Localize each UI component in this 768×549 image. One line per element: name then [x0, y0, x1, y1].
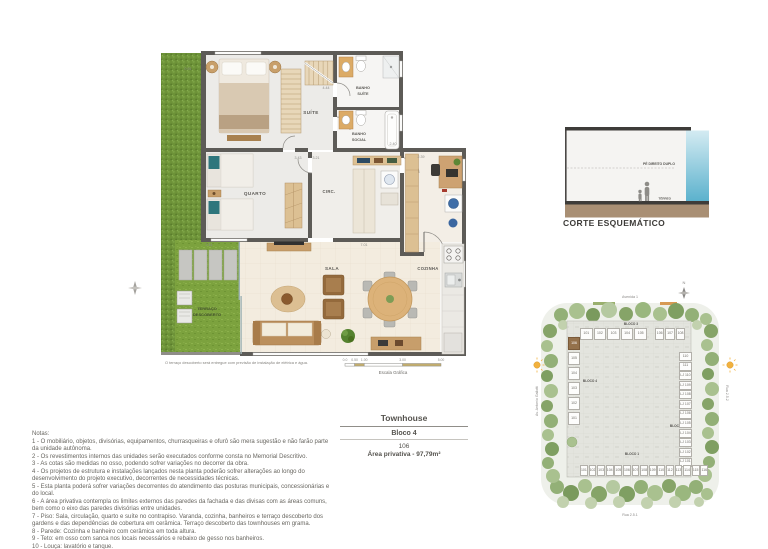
site-unit-cell: 105 — [614, 465, 622, 476]
terrace-low-wall — [161, 352, 240, 355]
site-unit-cell: 102 — [594, 328, 607, 340]
scale-tick-2: 1.00 — [361, 358, 368, 362]
site-unit-cell: LJ 108 — [679, 390, 692, 399]
section-label-terreo: TÉRREO — [658, 196, 671, 201]
site-unit-cell: 106 — [623, 465, 631, 476]
site-unit-cell: LJ 105 — [679, 419, 692, 428]
site-unit-cell: 112 — [666, 465, 674, 476]
site-unit-cell: 105 — [634, 328, 647, 340]
site-unit-cell: 108 — [676, 328, 685, 340]
courtyard-green — [567, 437, 577, 447]
unit-type: Townhouse — [340, 413, 468, 427]
sun-icon-right — [723, 358, 738, 373]
street-left: Av. Antonio Gallotti — [535, 386, 539, 416]
site-unit-cell: 104 — [568, 367, 580, 380]
section-interior — [566, 130, 686, 203]
dining-set — [363, 272, 421, 350]
unit-info-table: Townhouse Bloco 4 106 Área privativa - 9… — [340, 413, 468, 458]
section-label-pe-direito: PÉ DIREITO DUPLO — [643, 161, 675, 166]
scale-tick-4: 5.00 — [438, 358, 445, 362]
label-bloco-4: BLOCO 4 — [583, 379, 597, 383]
site-unit-cell: 113 — [675, 465, 683, 476]
label-bloco-1: BLOCO 1 — [625, 452, 639, 456]
site-unit-cell: 103 — [568, 382, 580, 395]
label-suite: SUÍTE — [303, 108, 319, 115]
section-sky — [686, 131, 709, 204]
site-unit-cell: 101 — [568, 412, 580, 425]
street-right: Rua 2.5.2 — [725, 385, 729, 401]
compass-n-label: N — [683, 280, 686, 285]
kitchen — [442, 244, 464, 354]
tv-console — [267, 242, 311, 252]
hedge-lower — [161, 240, 175, 354]
site-unit-cell: 107 — [632, 465, 640, 476]
unit-area: Área privativa - 97,79m² — [340, 451, 468, 458]
street-top: Avenida 1 — [622, 295, 638, 299]
section-ground — [565, 205, 709, 218]
site-unit-cell: 108 — [640, 465, 648, 476]
site-unit-cell: 103 — [607, 328, 620, 340]
dim-1: 4.44 — [323, 86, 330, 90]
site-unit-cell: LJ 104 — [679, 429, 692, 438]
notes-title: Notas: — [32, 431, 334, 439]
scale-tick-3: 3.00 — [399, 358, 406, 362]
floor-plan: TERRAÇO DESCOBERTO — [95, 23, 475, 395]
scale-title: Escala Gráfica — [379, 370, 408, 375]
site-unit-cell: 109 — [649, 465, 657, 476]
site-unit-cell: 102 — [589, 465, 597, 476]
site-unit-cell: 114 — [683, 465, 691, 476]
site-unit-cell: 101 — [580, 328, 593, 340]
label-banho-suite-2: SUÍTE — [357, 91, 369, 96]
label-quarto: QUARTO — [244, 191, 266, 196]
scale-tick-1: 0.50 — [351, 358, 358, 362]
dim-6: 7.01 — [361, 243, 368, 247]
site-unit-cell: 110 — [657, 465, 665, 476]
dim-8: 0.91 — [185, 67, 192, 71]
terrace-label-line2: DESCOBERTO — [193, 312, 221, 317]
dim-7: 2.41 — [206, 243, 213, 247]
site-unit-cell: LJ 107 — [679, 400, 692, 409]
unit-number: 106 — [340, 443, 468, 450]
notes-block: Notas: 1 - O mobiliário, objetos, divisó… — [32, 431, 334, 549]
site-unit-cell: LJ 109 — [679, 381, 692, 390]
section-diagram: PÉ DIREITO DUPLO TÉRREO — [558, 120, 718, 220]
plan-north-marker — [128, 281, 142, 295]
terrace-label-line1: TERRAÇO — [197, 306, 217, 311]
dim-2: 3.43 — [295, 156, 302, 160]
site-unit-cell: 103 — [597, 465, 605, 476]
page: TERRAÇO DESCOBERTO — [0, 0, 768, 549]
label-cozinha: COZINHA — [417, 266, 438, 271]
label-banho-social-1: BANHO — [352, 132, 366, 136]
site-unit-cell: LJ 106 — [679, 410, 692, 419]
site-unit-cell: 104 — [621, 328, 634, 340]
dim-5: 2.39 — [418, 155, 425, 159]
site-unit-cell: LJ 103 — [679, 438, 692, 447]
site-unit-cell: 116 — [700, 465, 708, 476]
street-bottom: Rua 2.5.1 — [622, 513, 638, 517]
unit-block: Bloco 4 — [340, 427, 468, 440]
compass-rose: N — [678, 280, 690, 299]
site-unit-cell: 115 — [692, 465, 700, 476]
plan-footnote: O terraço descoberto será entregue com p… — [165, 360, 308, 365]
site-unit-cell: 111 — [679, 362, 692, 371]
site-plan: BLOCO 3 BLOCO 4 BLOCO 2 BLOCO 1 N Avenid… — [533, 273, 768, 541]
label-sala: SALA — [325, 266, 339, 271]
scale-bar: 0.0 0.50 1.00 3.00 5.00 Escala Gráfica — [343, 358, 445, 375]
label-banho-social-2: SOCIAL — [352, 138, 367, 142]
hedge-upper — [161, 53, 203, 240]
section-roof-slab — [565, 127, 691, 131]
site-unit-cell: LJ 110 — [679, 371, 692, 380]
section-diagram-title: CORTE ESQUEMÁTICO — [563, 218, 665, 228]
site-unit-cell: 101 — [580, 465, 588, 476]
scale-tick-0: 0.0 — [343, 358, 348, 362]
notes-items: 1 - O mobiliário, objetos, divisórias, e… — [32, 439, 334, 549]
label-circ: CIRC. — [323, 189, 336, 194]
site-unit-cell: 102 — [568, 397, 580, 410]
site-unit-cell: 106 — [655, 328, 664, 340]
section-floor-slab — [565, 201, 709, 205]
section-left-wall — [565, 131, 567, 202]
dim-4: 2.40 — [390, 142, 397, 146]
site-unit-cell: 107 — [665, 328, 674, 340]
site-unit-cell: 105 — [568, 352, 580, 365]
label-bloco-3: BLOCO 3 — [624, 322, 638, 326]
label-banho-suite-1: BANHO — [356, 86, 370, 90]
site-unit-cell: LJ 102 — [679, 448, 692, 457]
dim-3: 3.21 — [313, 156, 320, 160]
site-unit-cell: 106 — [568, 337, 580, 350]
site-unit-cell: 104 — [606, 465, 614, 476]
site-unit-cell: 110 — [679, 352, 692, 361]
